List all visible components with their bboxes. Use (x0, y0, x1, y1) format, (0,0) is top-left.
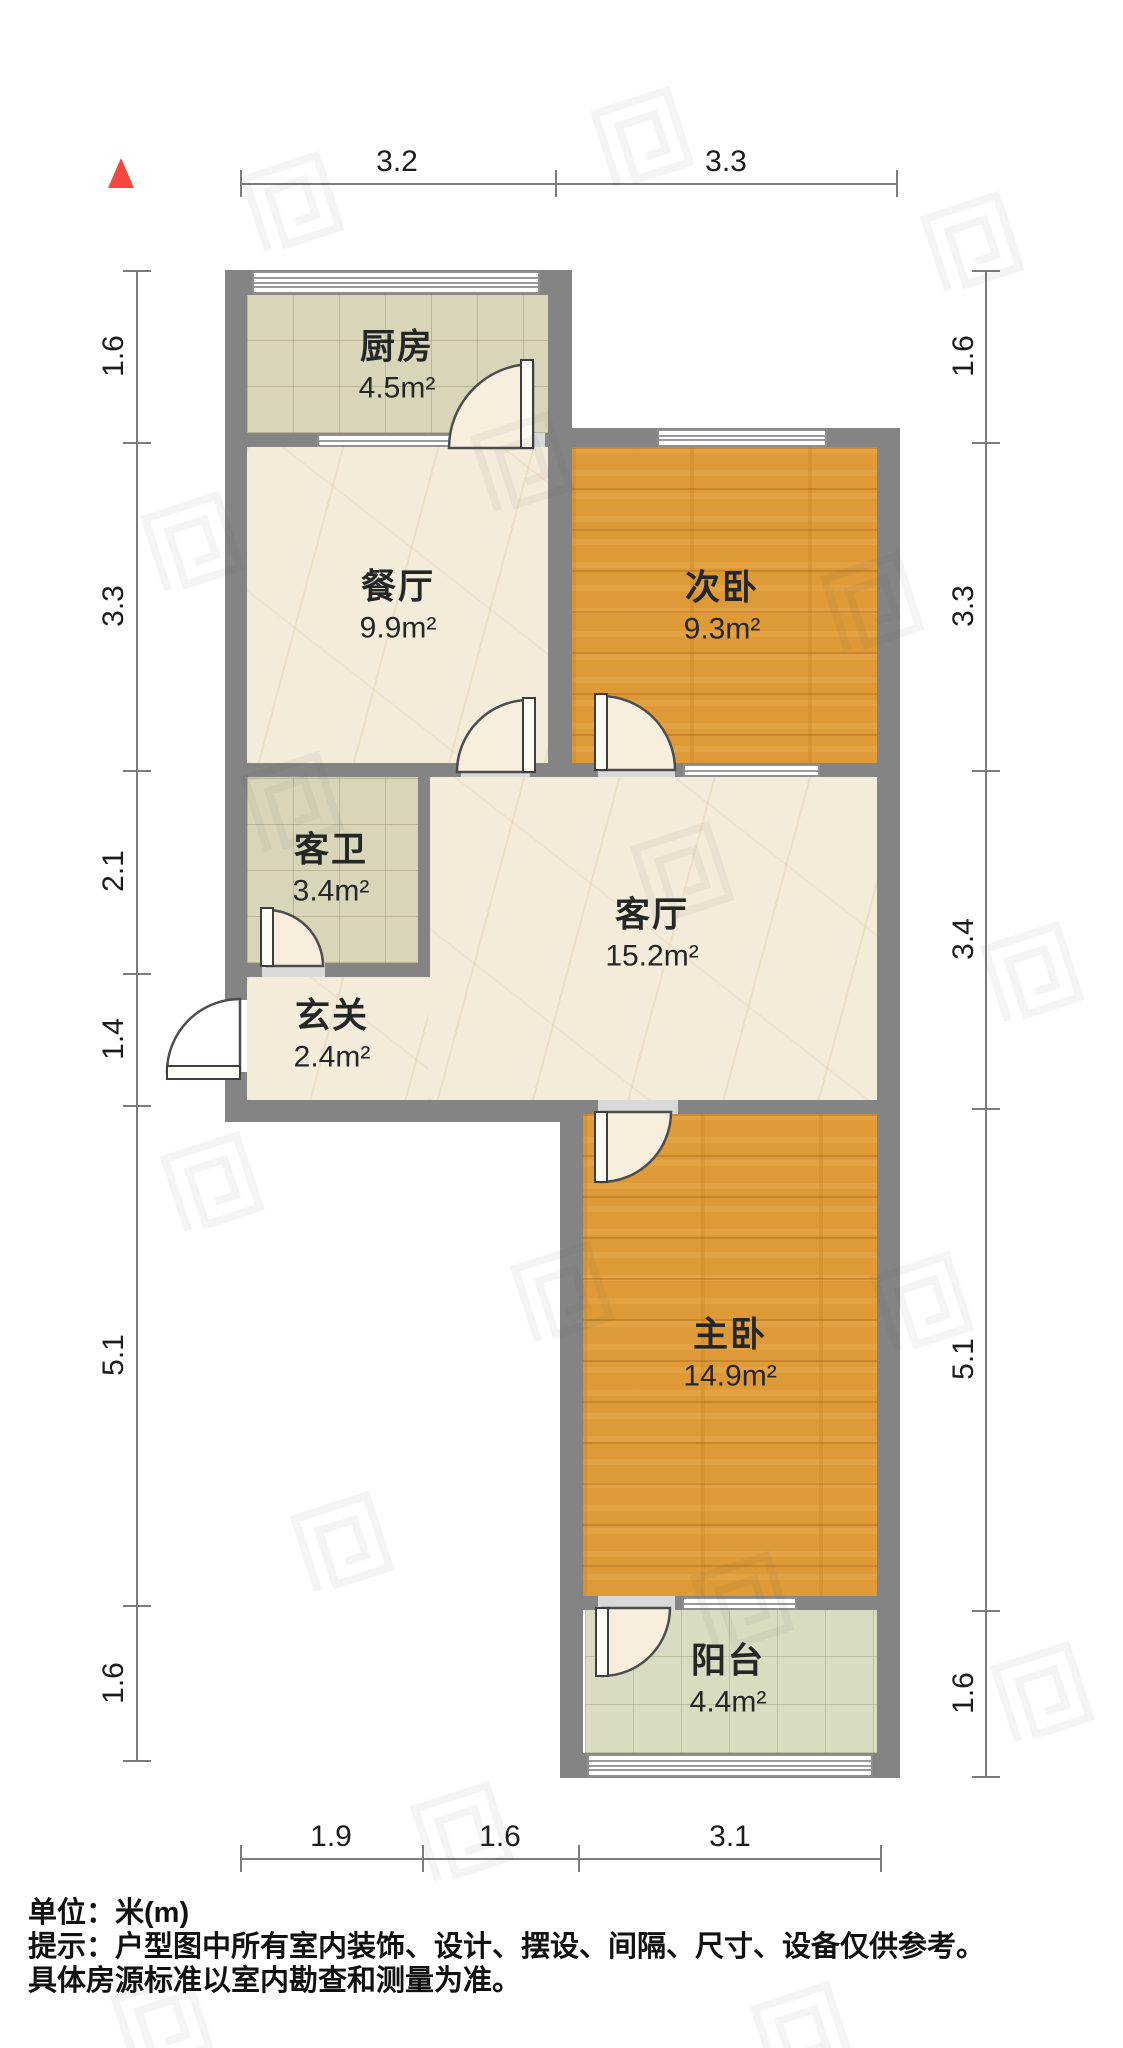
dim-value: 1.6 (97, 335, 131, 377)
dim-tick (123, 270, 151, 272)
bath-door (256, 906, 330, 972)
master-balcony-window (682, 1597, 797, 1610)
tip-note-line2: 具体房源标准以室内勘查和测量为准。 (28, 1964, 985, 1998)
dim-tick (123, 442, 151, 444)
wall (418, 777, 430, 977)
room-name: 厨房 (359, 328, 436, 367)
dim-tick (972, 770, 1000, 772)
dim-tick (972, 1776, 1000, 1778)
dim-line-left (136, 270, 138, 1762)
room-kitchen-label: 厨房 4.5m² (359, 328, 436, 404)
dim-tick (972, 1108, 1000, 1110)
dim-tick (972, 442, 1000, 444)
bedroom2-pass-window (683, 764, 820, 777)
tip-note-line1: 提示：户型图中所有室内装饰、设计、摆设、间隔、尺寸、设备仅供参考。 (28, 1930, 985, 1964)
room-name: 次卧 (684, 569, 761, 608)
dim-value: 1.6 (947, 1672, 981, 1714)
dim-value: 1.6 (479, 1820, 521, 1854)
wall (225, 270, 247, 1000)
watermark (988, 1639, 1098, 1752)
room-name: 主卧 (683, 1316, 776, 1355)
room-name: 玄关 (294, 997, 371, 1036)
room-name: 客厅 (605, 896, 698, 935)
dim-tick (896, 170, 898, 197)
room-area: 4.5m² (359, 371, 436, 404)
dim-tick (972, 270, 1000, 272)
kitchen-pass-window (317, 434, 458, 447)
dim-value: 3.4 (947, 918, 981, 960)
watermark (918, 189, 1028, 302)
notes-block: 单位：米(m) 提示：户型图中所有室内装饰、设计、摆设、间隔、尺寸、设备仅供参考… (28, 1896, 985, 1998)
room-master-label: 主卧 14.9m² (683, 1316, 776, 1392)
wall (225, 1100, 583, 1122)
dim-value: 1.6 (97, 1662, 131, 1704)
dim-tick (578, 1845, 580, 1872)
dim-tick (123, 973, 151, 975)
dim-tick (123, 1760, 151, 1762)
master-door (592, 1106, 682, 1188)
dim-value: 3.3 (705, 145, 747, 179)
bedroom2-window (657, 429, 827, 447)
room-area: 4.4m² (690, 1685, 767, 1718)
room-area: 9.9m² (360, 611, 437, 644)
dim-tick (880, 1845, 882, 1872)
unit-note: 单位：米(m) (28, 1896, 985, 1930)
dim-tick (123, 1605, 151, 1607)
watermark (588, 84, 698, 197)
room-dining-label: 餐厅 9.9m² (360, 568, 437, 644)
entry-door (160, 994, 248, 1086)
room-bath-label: 客卫 3.4m² (293, 831, 370, 907)
wall (548, 270, 572, 777)
room-area: 3.4m² (293, 874, 370, 907)
balcony-window (587, 1754, 873, 1777)
balcony-door (592, 1602, 676, 1682)
bedroom2-door (592, 692, 682, 776)
room-foyer-label: 玄关 2.4m² (294, 997, 371, 1073)
dim-tick (555, 170, 557, 197)
dim-value: 2.1 (97, 850, 131, 892)
dim-line-top (240, 183, 898, 185)
dim-value: 1.4 (97, 1018, 131, 1060)
room-area: 2.4m² (294, 1040, 371, 1073)
dim-tick (240, 1845, 242, 1872)
watermark (238, 149, 348, 262)
dining-door (455, 696, 539, 778)
kitchen-door (448, 356, 550, 450)
dim-value: 1.6 (947, 335, 981, 377)
room-bedroom2-label: 次卧 9.3m² (684, 569, 761, 645)
dim-tick (123, 770, 151, 772)
north-arrow-icon (108, 158, 134, 188)
floorplan-canvas: 厨房 4.5m² 餐厅 9.9m² 次卧 9.3m² 客卫 3.4m² 玄关 2… (0, 0, 1123, 2048)
dim-value: 5.1 (97, 1334, 131, 1376)
room-area: 15.2m² (605, 939, 698, 972)
watermark (978, 919, 1088, 1032)
dim-value: 3.1 (709, 1820, 751, 1854)
dim-line-right (985, 270, 987, 1778)
room-name: 客卫 (293, 831, 370, 870)
dim-value: 3.2 (376, 145, 418, 179)
kitchen-window (252, 271, 540, 294)
dim-line-bottom (240, 1858, 882, 1860)
room-area: 14.9m² (683, 1359, 776, 1392)
room-balcony-label: 阳台 4.4m² (690, 1642, 767, 1718)
watermark (158, 1129, 268, 1242)
room-name: 阳台 (690, 1642, 767, 1681)
dim-tick (240, 170, 242, 197)
dim-tick (123, 1105, 151, 1107)
wall (560, 1100, 583, 1778)
room-living-label: 客厅 15.2m² (605, 896, 698, 972)
watermark (288, 1489, 398, 1602)
dim-value: 5.1 (947, 1338, 981, 1380)
dim-tick (422, 1845, 424, 1872)
dim-value: 1.9 (310, 1820, 352, 1854)
room-name: 餐厅 (360, 568, 437, 607)
room-area: 9.3m² (684, 612, 761, 645)
dim-value: 3.3 (947, 585, 981, 627)
dim-value: 3.3 (97, 585, 131, 627)
dim-tick (972, 1610, 1000, 1612)
